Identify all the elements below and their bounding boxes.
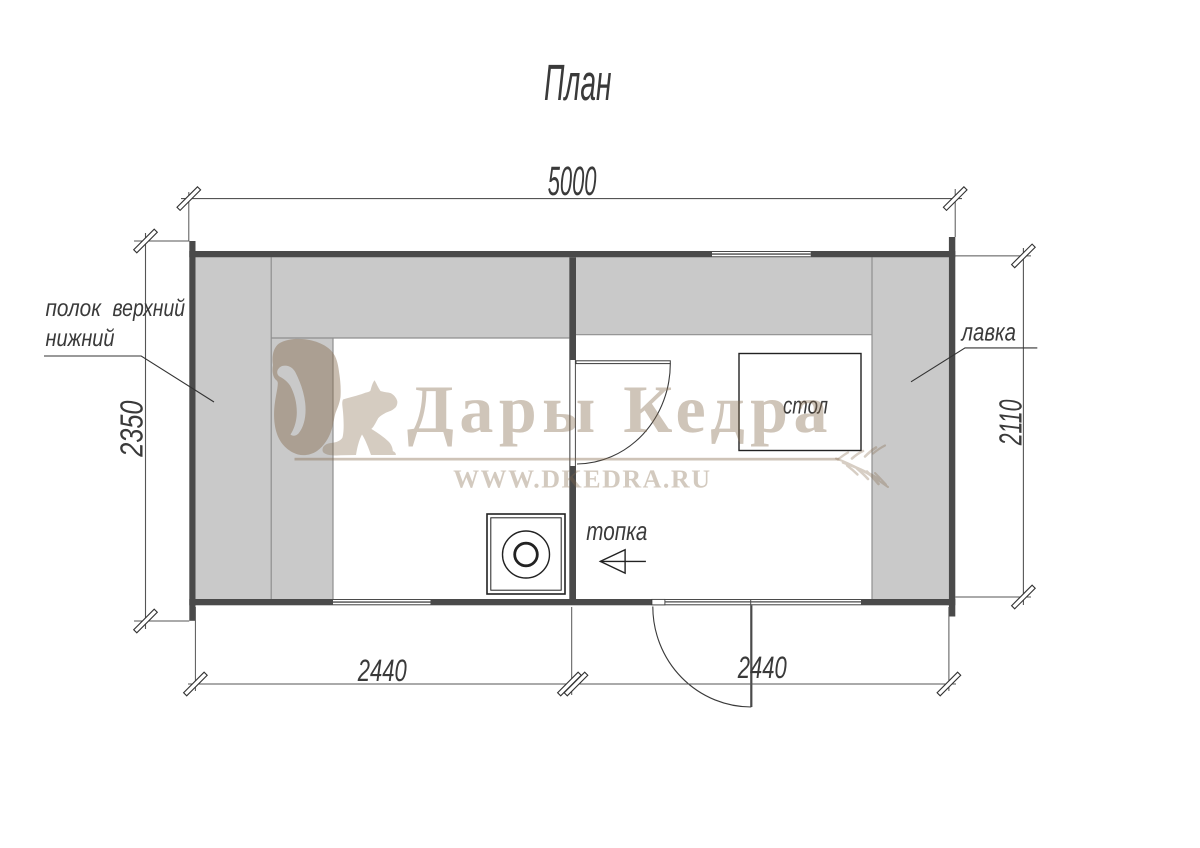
svg-text:План: План	[544, 54, 612, 111]
svg-text:лавка: лавка	[960, 319, 1016, 347]
svg-text:WWW.DKEDRA.RU: WWW.DKEDRA.RU	[453, 465, 711, 494]
svg-text:2110: 2110	[992, 399, 1028, 446]
svg-text:полок: полок	[46, 295, 103, 322]
svg-text:5000: 5000	[548, 158, 597, 204]
svg-text:2350: 2350	[114, 400, 150, 457]
svg-text:Дары Кедра: Дары Кедра	[407, 371, 833, 447]
svg-text:верхний: верхний	[113, 295, 186, 322]
svg-text:нижний: нижний	[46, 325, 115, 352]
svg-text:топка: топка	[586, 516, 647, 546]
svg-text:2440: 2440	[357, 653, 407, 688]
svg-text:2440: 2440	[737, 650, 787, 685]
